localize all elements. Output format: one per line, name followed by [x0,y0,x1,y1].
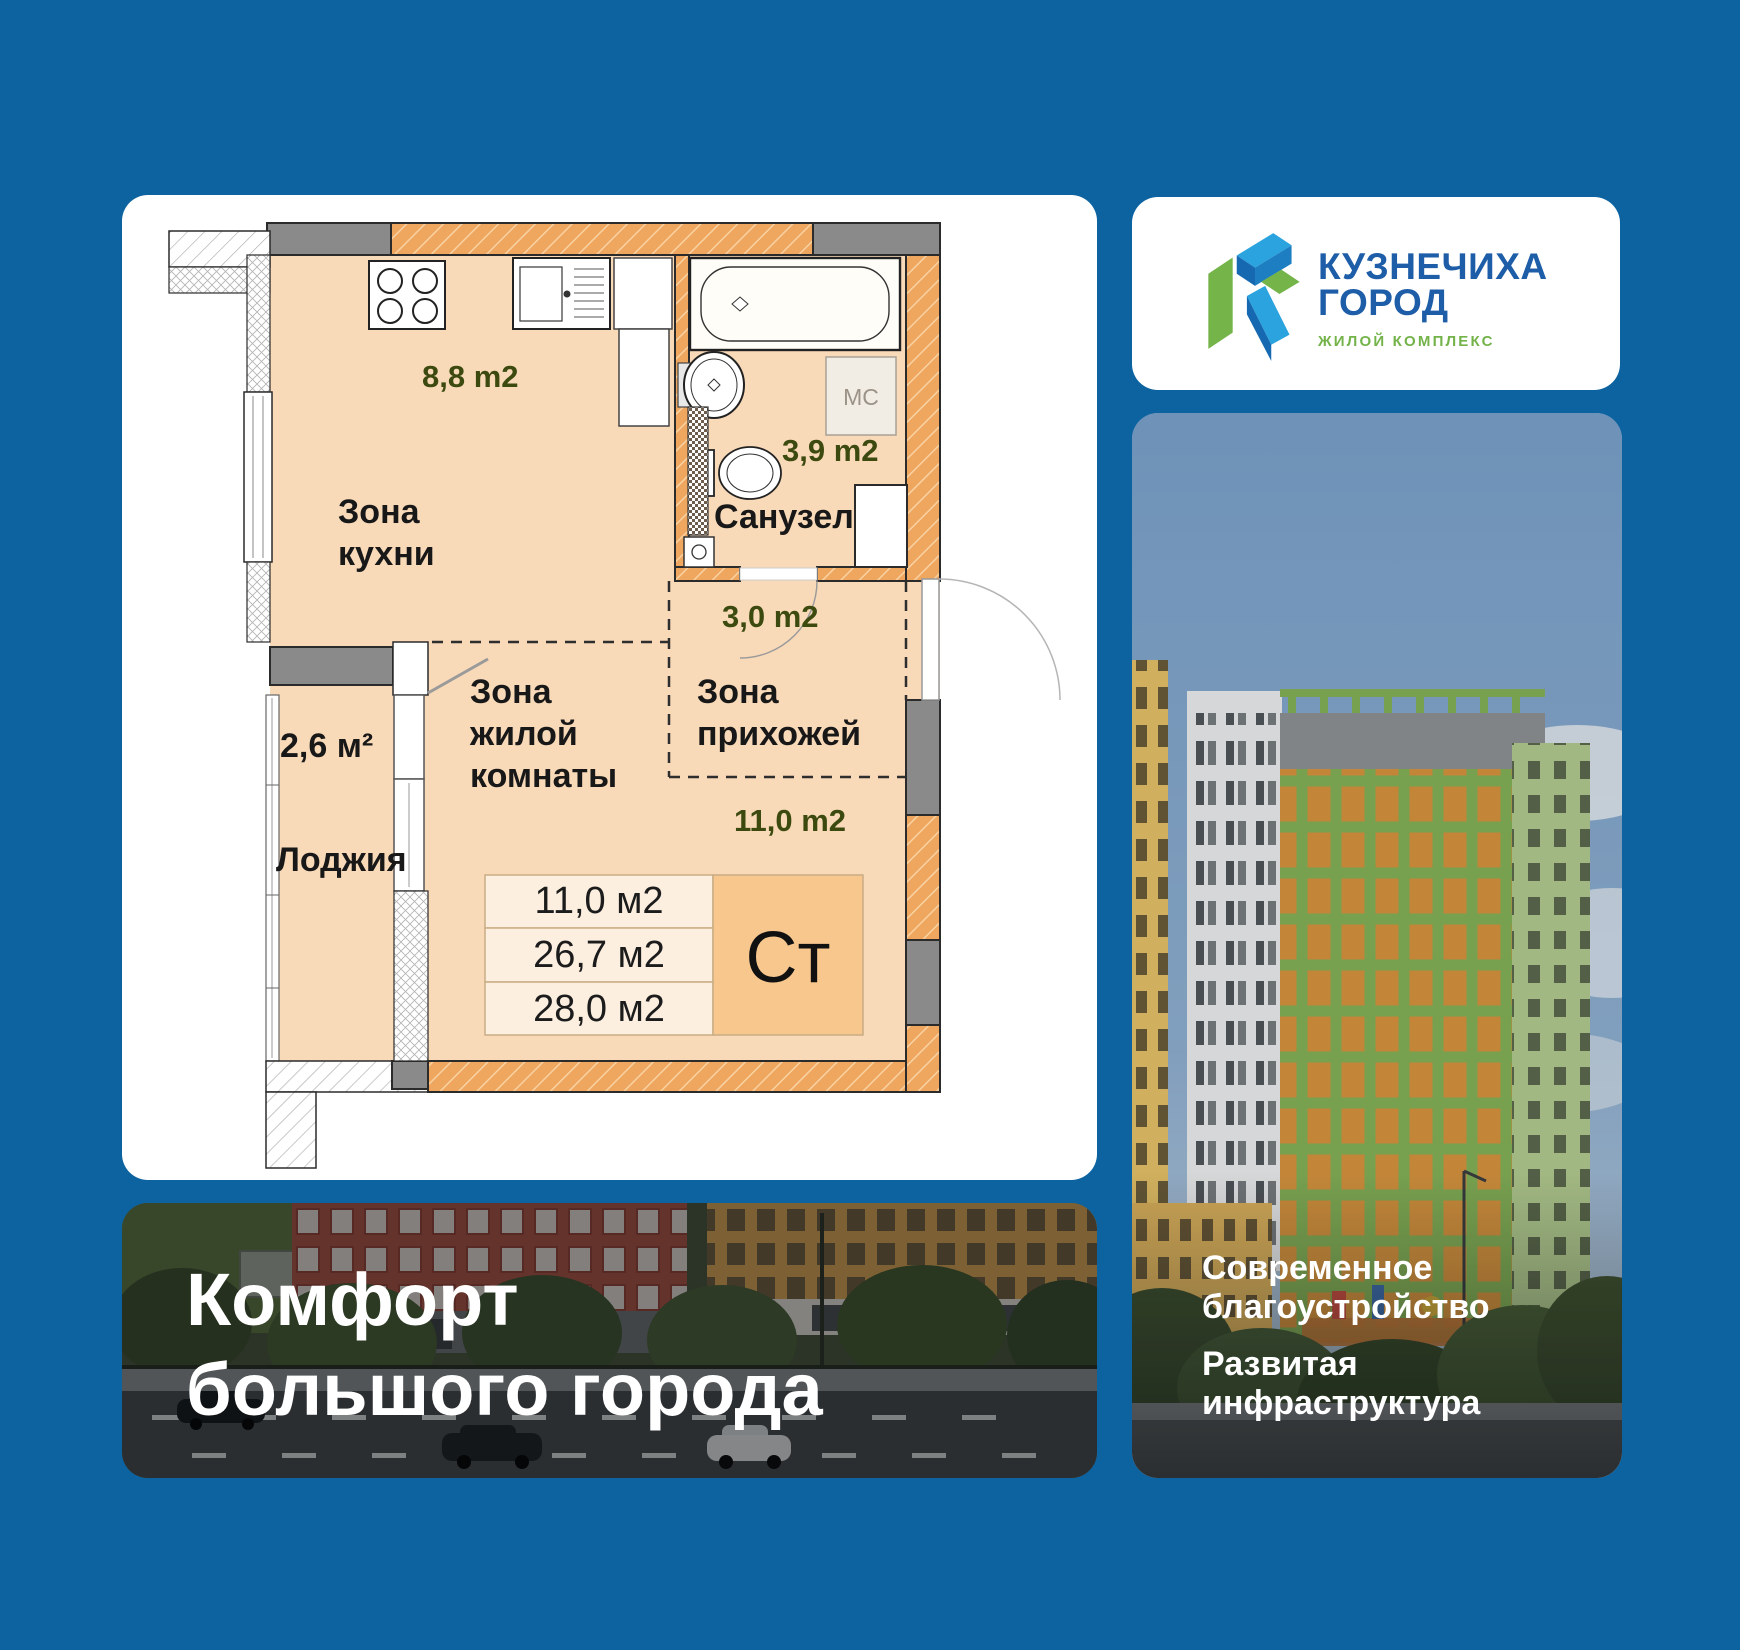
fridge-icon [619,329,669,426]
table-row-1: 11,0 м2 [535,880,664,922]
toilet-icon [719,447,781,499]
left-banner-line2: большого города [186,1345,823,1435]
loggia-name-label: Лоджия [276,841,407,879]
logo-title-line2: ГОРОД [1318,285,1548,321]
logo-card: КУЗНЕЧИХА ГОРОД ЖИЛОЙ КОМПЛЕКС [1132,197,1620,390]
bathroom-name-label: Санузел [714,498,854,536]
poster-canvas: МС 8,8 m2 Зона кухни 3,9 m2 Санузел 3,0 … [0,0,1740,1650]
table-row-2: 26,7 м2 [533,934,665,976]
logo-text-block: КУЗНЕЧИХА ГОРОД ЖИЛОЙ КОМПЛЕКС [1318,249,1548,350]
kitchen-zone-line1: Зона [338,493,421,531]
right-banner-line2: благоустройство [1202,1288,1490,1327]
right-banner-block2: Развитая инфраструктура [1202,1345,1480,1423]
cabinet-icon [614,258,672,329]
bathroom-area-label: 3,9 m2 [782,433,879,468]
loggia-area-label: 2,6 м² [280,727,373,765]
table-row-3: 28,0 м2 [533,988,665,1030]
living-area-label: 11,0 m2 [734,803,846,838]
logo-title-line1: КУЗНЕЧИХА [1318,249,1548,285]
kitchen-area-label: 8,8 m2 [422,359,519,394]
left-banner-text: Комфорт большого города [186,1255,823,1435]
hallway-zone-line2: прихожей [697,715,861,753]
right-banner-line1: Современное [1202,1249,1490,1288]
hallway-area-label: 3,0 m2 [722,599,819,634]
kitchen-zone-line2: кухни [338,535,435,573]
right-banner-line4: инфраструктура [1202,1384,1480,1423]
living-zone-line3: комнаты [470,757,617,795]
logo-k-icon [1206,225,1302,361]
hallway-zone-line1: Зона [697,673,780,711]
vent-shaft [688,407,708,535]
left-banner-line1: Комфорт [186,1255,823,1345]
right-photo-panel: Современное благоустройство Развитая инф… [1132,413,1622,1478]
bathtub-icon [690,258,900,350]
floor-plan-card: МС 8,8 m2 Зона кухни 3,9 m2 Санузел 3,0 … [122,195,1097,1180]
summary-table: 11,0 м2 26,7 м2 28,0 м2 Ст [485,875,863,1035]
apartment-type-label: Ст [746,918,831,998]
entry-door-arc [939,579,1060,700]
street-photo-band: Комфорт большого города [122,1203,1097,1478]
logo-subtitle: ЖИЛОЙ КОМПЛЕКС [1318,333,1548,350]
living-zone-line1: Зона [470,673,553,711]
living-zone-line2: жилой [469,715,578,753]
right-banner-line3: Развитая [1202,1345,1480,1384]
right-banner-block1: Современное благоустройство [1202,1249,1490,1327]
floor-plan-svg: МС 8,8 m2 Зона кухни 3,9 m2 Санузел 3,0 … [122,195,1097,1180]
washing-machine-label: МС [843,384,879,410]
